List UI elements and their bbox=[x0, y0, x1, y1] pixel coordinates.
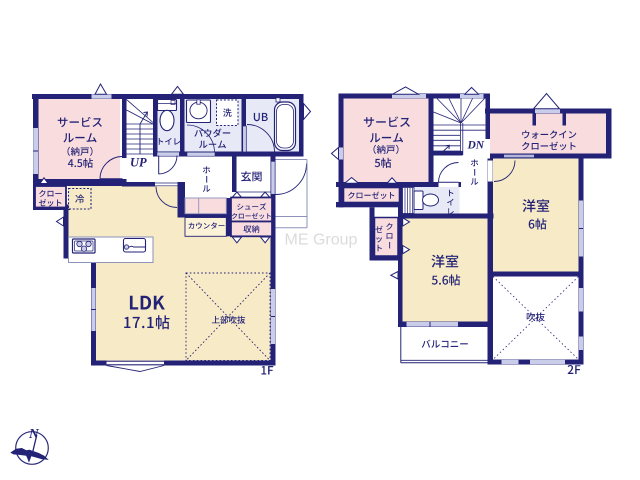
svg-text:DN: DN bbox=[467, 140, 485, 152]
svg-text:N: N bbox=[28, 426, 40, 441]
svg-text:ME Group: ME Group bbox=[285, 231, 358, 248]
svg-text:UP: UP bbox=[130, 156, 147, 170]
